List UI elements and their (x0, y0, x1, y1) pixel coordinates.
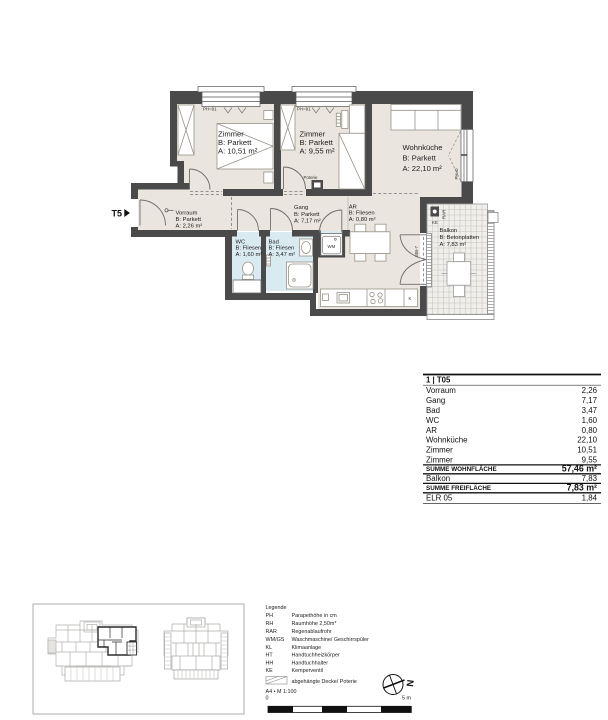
svg-text:StB-7: StB-7 (414, 245, 419, 257)
svg-text:B: Fliesen: B: Fliesen (269, 246, 295, 252)
svg-text:7,17: 7,17 (582, 396, 597, 405)
svg-text:Wohnküche: Wohnküche (426, 436, 468, 445)
svg-text:PH=91: PH=91 (297, 107, 311, 112)
svg-text:B: Fliesen: B: Fliesen (349, 211, 375, 217)
svg-text:ELR 05: ELR 05 (426, 493, 453, 502)
svg-text:Poterie: Poterie (304, 175, 318, 180)
svg-text:PH=0: PH=0 (454, 168, 459, 180)
svg-text:2,26: 2,26 (582, 386, 598, 395)
svg-text:N: N (405, 679, 417, 687)
svg-text:Balkon: Balkon (426, 474, 450, 483)
svg-text:B: Betonplatten: B: Betonplatten (440, 235, 480, 241)
svg-text:22,10: 22,10 (577, 436, 597, 445)
svg-text:HH: HH (266, 660, 274, 666)
svg-text:RAR: RAR (266, 629, 277, 635)
svg-text:Zimmer: Zimmer (426, 446, 453, 455)
svg-text:K: K (409, 296, 412, 301)
svg-text:Wohnküche: Wohnküche (403, 143, 443, 152)
svg-text:RAR: RAR (442, 210, 447, 219)
svg-text:Gang: Gang (294, 205, 308, 211)
svg-text:SUMME FREIFLÄCHE: SUMME FREIFLÄCHE (426, 484, 491, 492)
svg-text:PH: PH (266, 613, 274, 619)
svg-text:WM: WM (328, 244, 336, 249)
svg-text:0: 0 (266, 696, 269, 702)
svg-text:1,84: 1,84 (582, 493, 598, 502)
svg-text:abgehängte Decke/ Poterie: abgehängte Decke/ Poterie (292, 679, 357, 685)
svg-text:SUMME WOHNFLÄCHE: SUMME WOHNFLÄCHE (426, 465, 497, 473)
svg-text:Handtuchhalter: Handtuchhalter (292, 660, 329, 666)
svg-text:Kemperventil: Kemperventil (292, 668, 323, 674)
svg-text:A: 2,26 m²: A: 2,26 m² (176, 224, 203, 230)
svg-text:57,46 m²: 57,46 m² (562, 464, 597, 474)
svg-text:A4 • M 1:100: A4 • M 1:100 (266, 689, 297, 695)
svg-text:B: Fliesen: B: Fliesen (236, 246, 262, 252)
svg-text:3,47: 3,47 (582, 406, 597, 415)
svg-text:T5: T5 (112, 209, 123, 219)
svg-text:RH: RH (266, 621, 274, 627)
svg-text:B: Parkett: B: Parkett (294, 212, 320, 218)
svg-text:KE: KE (266, 668, 274, 674)
svg-text:KL: KL (266, 645, 273, 651)
svg-text:KE: KE (432, 220, 438, 225)
svg-text:Waschmaschine/ Geschirrspüler: Waschmaschine/ Geschirrspüler (292, 637, 370, 643)
svg-text:Klimaanlage: Klimaanlage (292, 645, 322, 651)
svg-text:1,60: 1,60 (582, 416, 598, 425)
svg-text:A: 7,83 m²: A: 7,83 m² (440, 242, 467, 248)
svg-text:Gang: Gang (426, 396, 445, 405)
svg-text:AR: AR (426, 426, 437, 435)
svg-text:Vorraum: Vorraum (426, 386, 456, 395)
svg-text:5 m: 5 m (402, 696, 411, 702)
svg-text:AR: AR (349, 205, 357, 211)
svg-text:A: 22,10 m²: A: 22,10 m² (403, 164, 443, 173)
svg-text:A: 3,47 m²: A: 3,47 m² (269, 252, 296, 258)
svg-text:A: 7,17 m²: A: 7,17 m² (294, 219, 321, 225)
svg-text:WC: WC (426, 416, 439, 425)
svg-text:Raumhöhe 2,50m*: Raumhöhe 2,50m* (292, 621, 338, 627)
svg-text:7,83: 7,83 (582, 474, 598, 483)
svg-text:Vorraum: Vorraum (176, 211, 198, 217)
svg-text:Handtuchheizkörper: Handtuchheizkörper (292, 653, 340, 659)
svg-text:Zimmer: Zimmer (426, 456, 453, 465)
svg-text:WC: WC (236, 240, 246, 246)
svg-text:0,80: 0,80 (582, 426, 598, 435)
svg-text:10,51: 10,51 (577, 446, 597, 455)
svg-text:A: 0,80 m²: A: 0,80 m² (349, 217, 376, 223)
svg-text:PH=91: PH=91 (203, 107, 217, 112)
svg-text:Bad: Bad (269, 240, 279, 246)
svg-text:A: 10,51 m²: A: 10,51 m² (218, 147, 258, 156)
svg-text:A: 9,55 m²: A: 9,55 m² (300, 147, 335, 156)
svg-text:B: Parkett: B: Parkett (403, 154, 437, 163)
svg-text:B: Parkett: B: Parkett (176, 217, 202, 223)
svg-text:Regenablaufrohr: Regenablaufrohr (292, 629, 332, 635)
svg-text:1 | T05: 1 | T05 (426, 376, 451, 385)
svg-text:Legende: Legende (266, 605, 287, 611)
svg-text:Bad: Bad (426, 406, 440, 415)
svg-text:Parapethöhe in cm: Parapethöhe in cm (292, 613, 338, 619)
svg-text:Balkon: Balkon (440, 228, 458, 234)
svg-text:WM/GS: WM/GS (266, 637, 285, 643)
svg-text:7,83 m²: 7,83 m² (567, 483, 597, 493)
svg-text:HT: HT (266, 653, 274, 659)
svg-text:A: 1,60 m²: A: 1,60 m² (236, 252, 263, 258)
